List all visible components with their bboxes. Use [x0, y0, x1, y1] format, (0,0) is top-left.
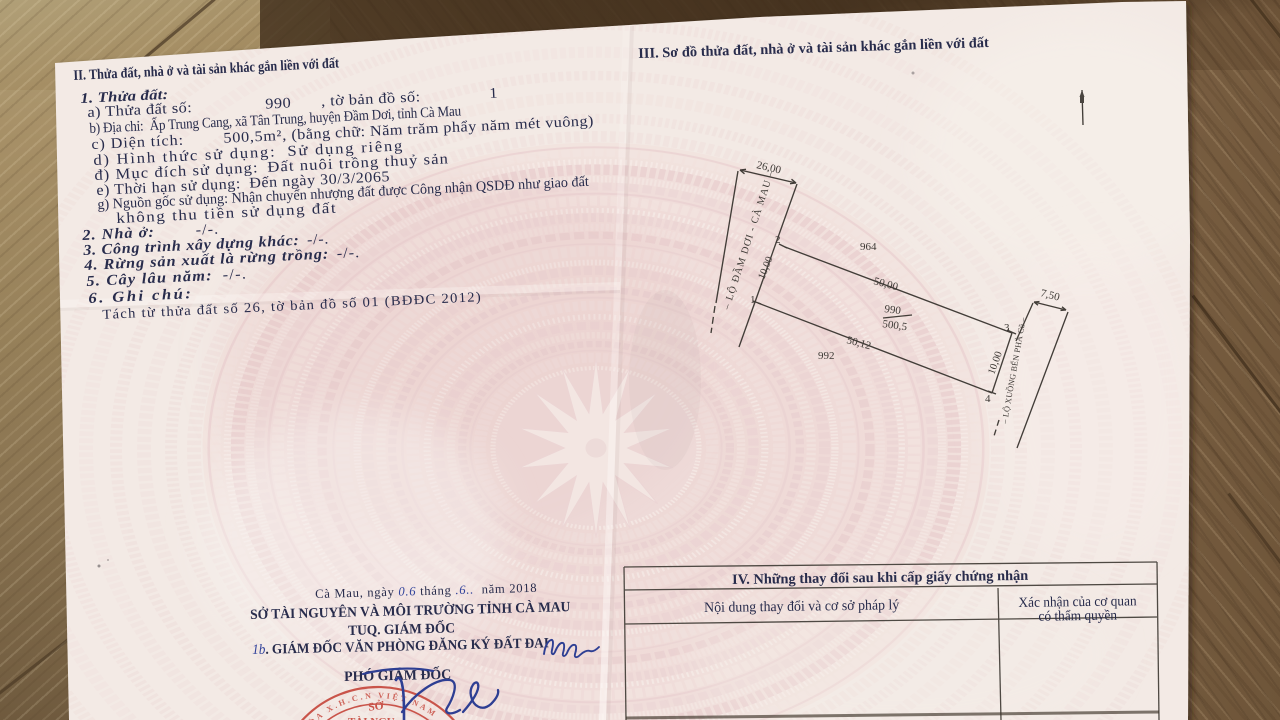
svg-text:SỞ: SỞ — [368, 698, 386, 714]
svg-text:TÀI NGU: TÀI NGU — [348, 716, 395, 720]
